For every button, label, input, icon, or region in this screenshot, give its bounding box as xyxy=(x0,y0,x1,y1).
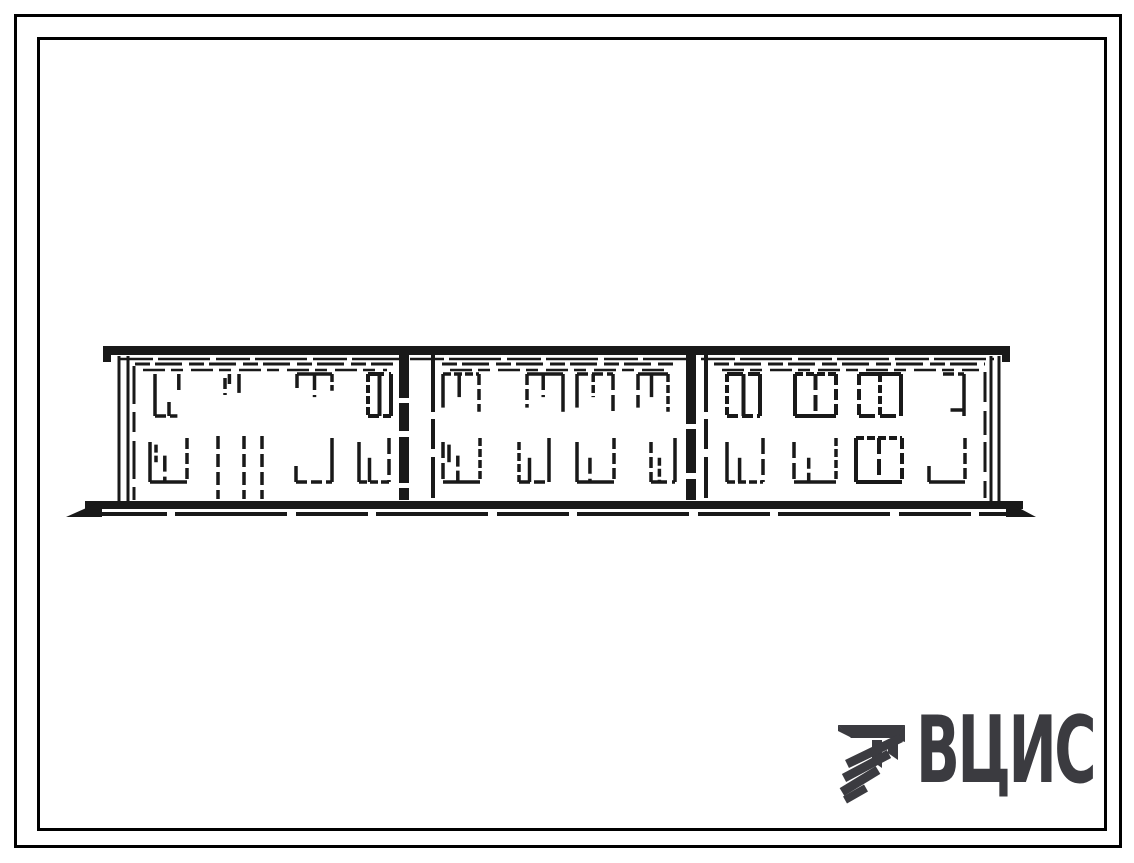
logo-text: ВЦИС xyxy=(916,704,1094,797)
building-group xyxy=(66,346,1036,517)
logo-emblem-icon xyxy=(838,725,905,800)
sheet: ВЦИС xyxy=(0,0,1134,863)
